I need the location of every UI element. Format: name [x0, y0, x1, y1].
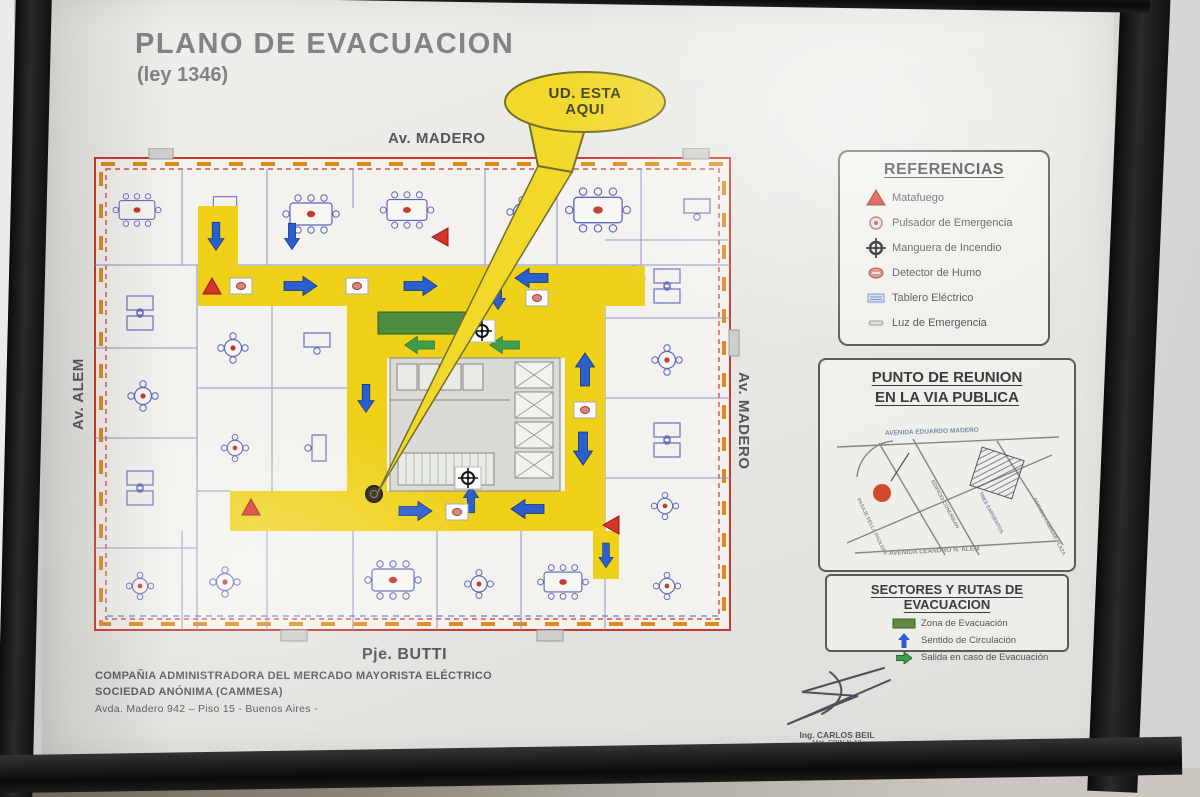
meeting-point-title-1: PUNTO DE REUNION	[820, 368, 1074, 387]
meeting-point-map: AVENIDA EDUARDO MADERO AVENIDA LEANDRO N…	[827, 415, 1067, 557]
legend-label: Detector de Humo	[892, 267, 981, 279]
fire-hose-marker	[455, 467, 481, 489]
legend-label: Zona de Evacuación	[921, 618, 1008, 629]
poster-title: PLANO DE EVACUACION	[135, 28, 514, 61]
street-label-top: Av. MADERO	[388, 130, 486, 147]
legend-label: Salida en caso de Evacuación	[921, 652, 1048, 663]
legend-item-pulsador: Pulsador de Emergencia	[840, 210, 1048, 235]
company-address: Avda. Madero 942 – Piso 15 - Buenos Aire…	[95, 703, 318, 715]
legend-label: Sentido de Circulación	[921, 635, 1016, 646]
evacuation-zone	[378, 312, 466, 334]
elevator	[515, 452, 553, 478]
company-name-line1: COMPAÑIA ADMINISTRADORA DEL MERCADO MAYO…	[95, 670, 492, 682]
fire-hose-marker	[469, 320, 495, 342]
legend-item-luz: Luz de Emergencia	[840, 310, 1048, 335]
legend-item-sentido: Sentido de Circulación	[827, 632, 1067, 649]
company-name-line2: SOCIEDAD ANÓNIMA (CAMMESA)	[95, 686, 283, 698]
you-are-here-balloon: UD. ESTA AQUI	[505, 86, 665, 118]
signer-name: Ing. CARLOS BEIL	[762, 730, 912, 740]
fire-hose-icon	[860, 238, 892, 258]
legend-label: Pulsador de Emergencia	[892, 217, 1012, 229]
legend-item-tablero: Tablero Eléctrico	[840, 285, 1048, 310]
svg-text:TRES SARGENTOS: TRES SARGENTOS	[977, 491, 1004, 535]
smoke-detector-icon	[860, 267, 892, 279]
svg-text:AVENIDA LEANDRO N. ALEM: AVENIDA LEANDRO N. ALEM	[889, 545, 980, 557]
evacuation-zone-swatch	[887, 618, 921, 629]
signature	[772, 658, 902, 730]
svg-text:EDIFICIO LAMINAR PLAZA: EDIFICIO LAMINAR PLAZA	[1031, 497, 1067, 557]
extinguisher-triangle-icon	[860, 189, 892, 206]
legend-item-detector: Detector de Humo	[840, 260, 1048, 285]
svg-text:EDIFICIO CONURBAN: EDIFICIO CONURBAN	[929, 479, 960, 530]
you-are-here-line1: UD. ESTA	[505, 86, 665, 102]
legend-item-manguera: Manguera de Incendio	[840, 235, 1048, 260]
legend-label: Matafuego	[892, 192, 944, 204]
emergency-light-icon	[860, 319, 892, 327]
svg-text:AVENIDA EDUARDO MADERO: AVENIDA EDUARDO MADERO	[885, 427, 979, 437]
you-are-here-line2: AQUI	[505, 102, 665, 118]
emergency-pushbutton-icon	[860, 215, 892, 231]
floor-plan	[85, 148, 740, 653]
framed-evacuation-plan-photo: PLANO DE EVACUACION (ley 1346) Av. MADER…	[0, 0, 1200, 797]
electrical-panel-icon	[860, 293, 892, 303]
meeting-point-panel: PUNTO DE REUNION EN LA VIA PUBLICA	[818, 358, 1076, 572]
legend-label: Manguera de Incendio	[892, 242, 1001, 254]
legend-item-matafuego: Matafuego	[840, 185, 1048, 210]
circulation-direction-arrow	[887, 633, 921, 648]
meeting-point-dot	[873, 484, 891, 502]
map-streets	[837, 437, 1063, 555]
sectores-panel: SECTORES Y RUTAS DE EVACUACION Zona de E…	[825, 574, 1069, 652]
meeting-point-title-2: EN LA VIA PUBLICA	[820, 388, 1074, 407]
referencias-title: REFERENCIAS	[840, 161, 1048, 179]
map-hatched-building	[970, 447, 1024, 499]
legend-label: Tablero Eléctrico	[892, 292, 973, 304]
elevator	[515, 392, 553, 418]
poster-law: (ley 1346)	[137, 64, 228, 87]
sectores-title: SECTORES Y RUTAS DE EVACUACION	[827, 582, 1067, 612]
legend-item-zona: Zona de Evacuación	[827, 615, 1067, 632]
elevator	[515, 422, 553, 448]
legend-label: Luz de Emergencia	[892, 317, 987, 329]
elevator	[515, 362, 553, 388]
referencias-panel: REFERENCIAS Matafuego Pulsador de Emerge…	[838, 150, 1050, 346]
you-are-here-dot	[366, 486, 382, 502]
